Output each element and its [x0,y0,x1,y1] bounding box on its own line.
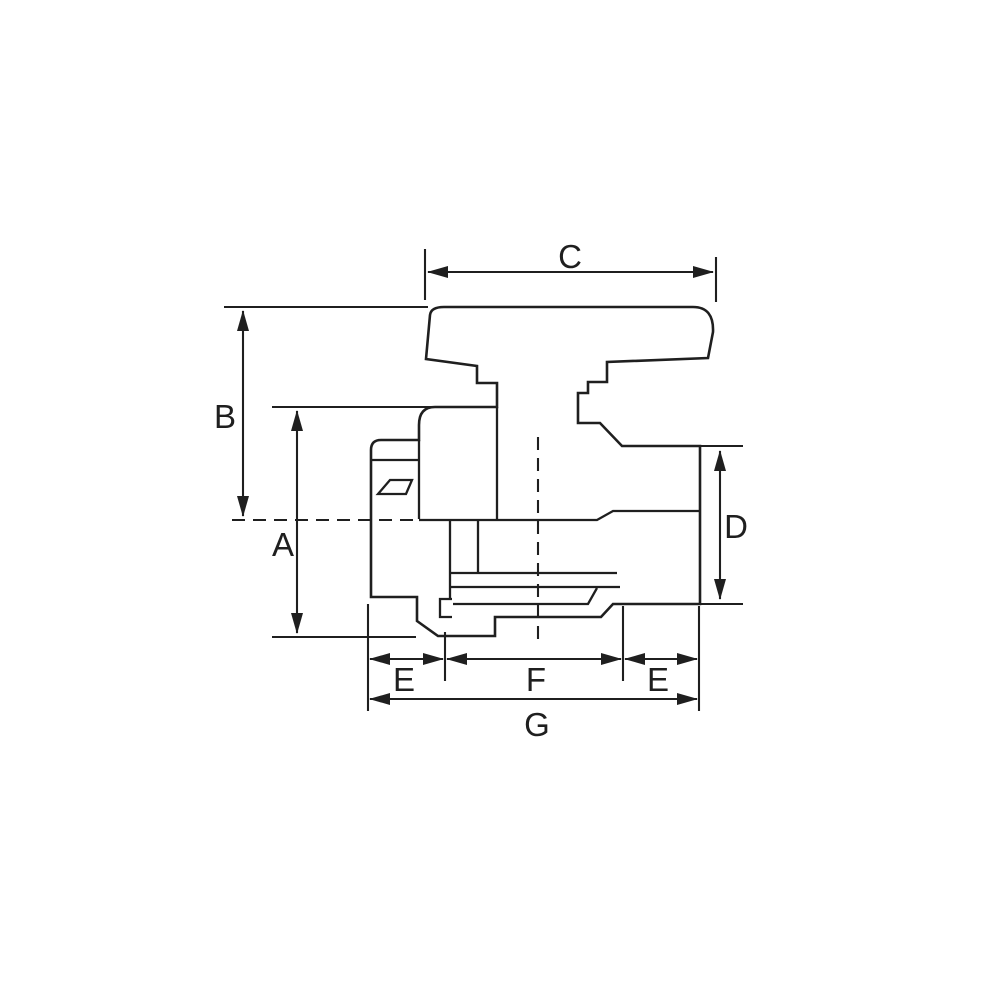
dimension-b-label: B [214,398,236,435]
dimension-e-right-label: E [647,661,669,698]
dimension-a-label: A [272,526,294,563]
dimension-g-label: G [524,706,550,743]
dimension-f-label: F [526,661,546,698]
drawing-background [0,0,1000,1000]
dimension-d-label: D [724,508,748,545]
dimension-e-left-label: E [393,661,415,698]
valve-dimension-drawing: C B A D [0,0,1000,1000]
valve-dimension-drawing-page: C B A D [0,0,1000,1000]
dimension-c-label: C [558,238,582,275]
